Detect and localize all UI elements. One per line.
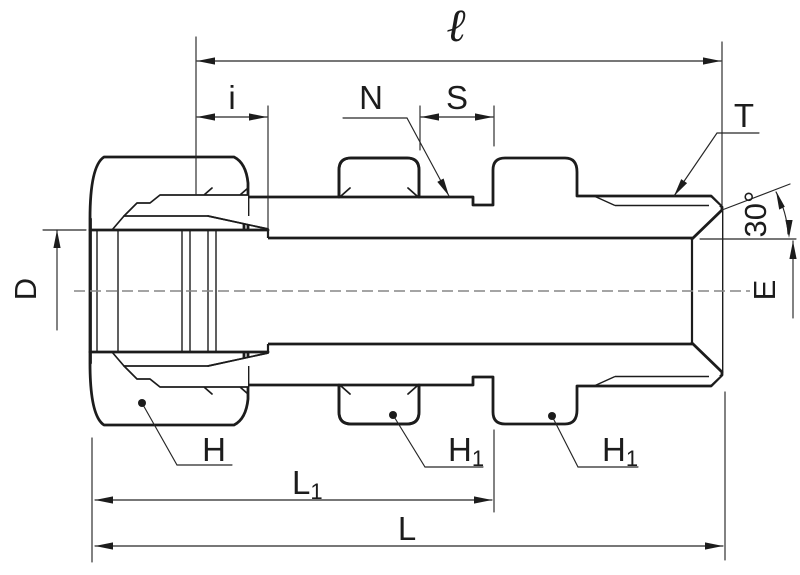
label-t: T	[734, 97, 754, 134]
label-l: L	[398, 510, 416, 547]
label-e: E	[747, 280, 782, 301]
fitting-technical-drawing: ℓ i N S T D E 30° H H1 H1 L1 L	[0, 0, 800, 575]
label-l1: L1	[292, 464, 323, 504]
label-angle-30: 30°	[738, 191, 773, 238]
hex-n-upper	[339, 158, 419, 197]
label-n: N	[359, 79, 383, 116]
label-h: H	[202, 431, 226, 468]
leader-t	[674, 133, 759, 196]
label-d: D	[8, 278, 43, 300]
label-i: i	[228, 79, 235, 116]
label-h1-left: H1	[448, 431, 484, 471]
hex-n-lower	[339, 385, 419, 424]
label-h1-right: H1	[602, 431, 638, 471]
drawing-canvas: ℓ i N S T D E 30° H H1 H1 L1 L	[0, 0, 800, 575]
label-s: S	[446, 79, 468, 116]
leader-dot-h1-right	[548, 412, 556, 420]
leader-dot-h	[138, 399, 146, 407]
leader-dot-h1-left	[389, 411, 397, 419]
label-ell: ℓ	[446, 0, 466, 52]
